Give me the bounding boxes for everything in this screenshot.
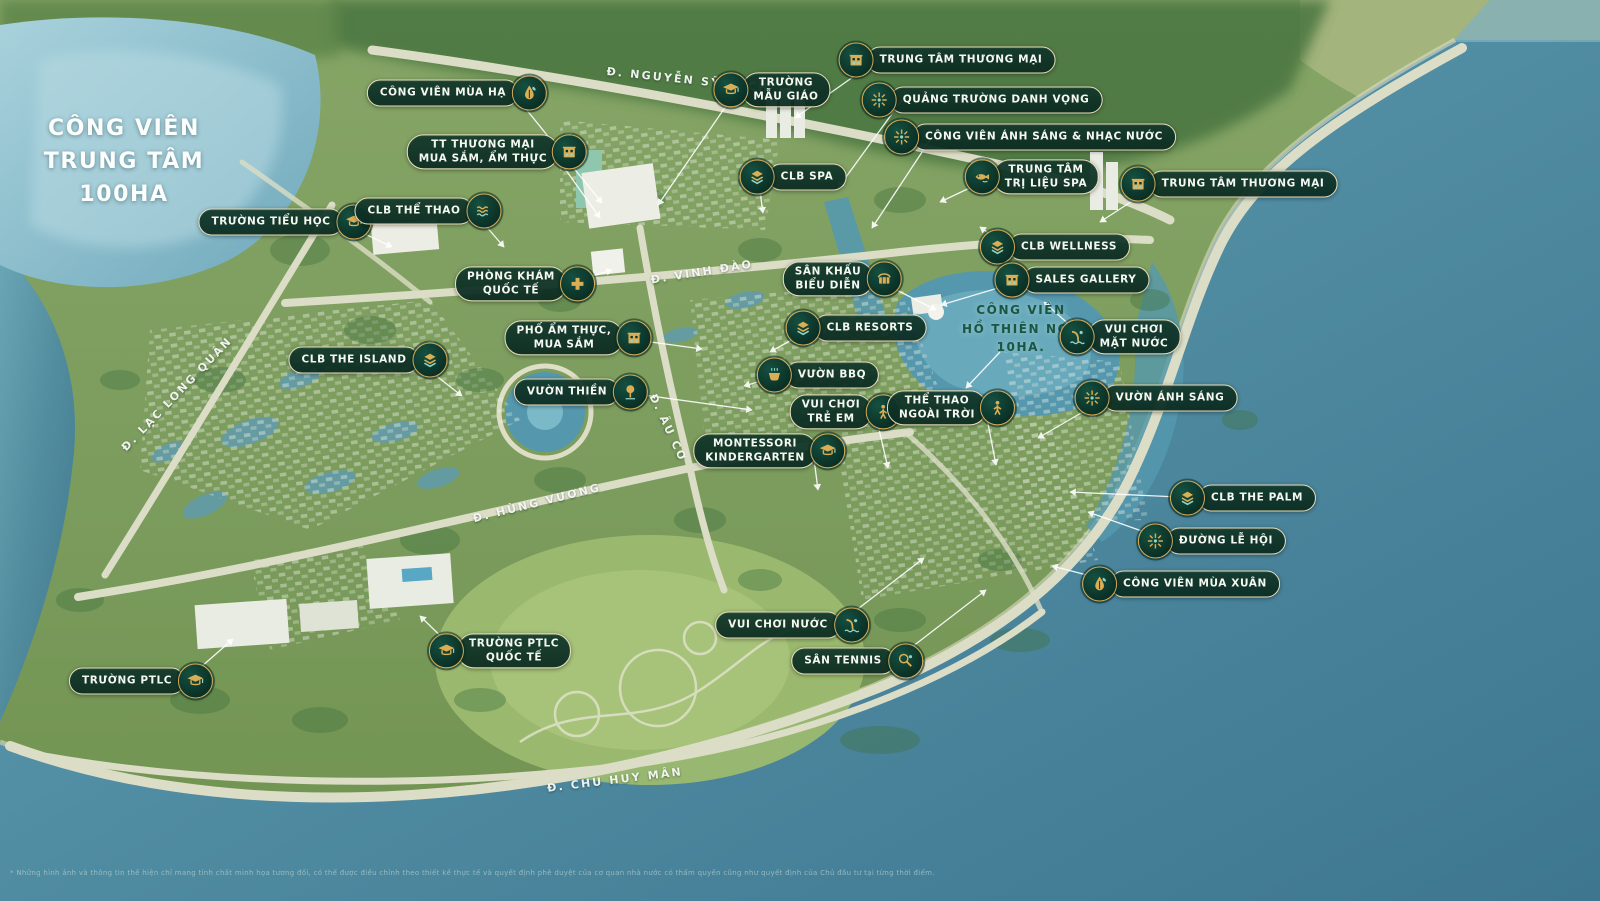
- marker-label: QUẢNG TRƯỜNG DANH VỌNG: [890, 86, 1103, 114]
- marker-label: CLB THE ISLAND: [288, 346, 419, 374]
- marker-label: TRUNG TÂM THƯƠNG MẠI: [867, 46, 1056, 74]
- layers-icon: [980, 230, 1015, 265]
- spark-icon: [884, 120, 919, 155]
- spark-icon: [1075, 381, 1110, 416]
- marker-duong-le-hoi[interactable]: ĐƯỜNG LỄ HỘI: [1138, 524, 1286, 559]
- marker-cong-vien-mua-xuan[interactable]: CÔNG VIÊN MÙA XUÂN: [1082, 567, 1280, 602]
- marker-vui-choi-nuoc[interactable]: VUI CHƠI NƯỚC: [715, 608, 869, 643]
- marker-label: TRƯỜNG PTLC: [69, 667, 185, 695]
- cap-icon: [178, 664, 213, 699]
- marker-clb-the-island[interactable]: CLB THE ISLAND: [288, 343, 447, 378]
- marker-label: VƯỜN BBQ: [785, 361, 879, 389]
- marker-label: TRUNG TÂM THƯƠNG MẠI: [1149, 170, 1338, 198]
- marker-montessori-kindergarten[interactable]: MONTESSORI KINDERGARTEN: [693, 433, 845, 468]
- aqua-icon: [834, 608, 869, 643]
- marker-label: CLB THỂ THAO: [354, 197, 473, 225]
- marker-label: TRƯỜNG MẪU GIÁO: [741, 72, 830, 107]
- marker-phong-kham-quoc-te[interactable]: PHÒNG KHÁM QUỐC TẾ: [455, 266, 595, 301]
- marker-san-tennis[interactable]: SÂN TENNIS: [791, 644, 923, 679]
- marker-cong-vien-mua-ha[interactable]: CÔNG VIÊN MÙA HẠ: [367, 76, 547, 111]
- masterplan-stage: CÔNG VIÊN TRUNG TÂM 100HA Đ. NGUYỄN SỸ S…: [0, 0, 1600, 901]
- marker-label: TRƯỜNG PTLC QUỐC TẾ: [457, 633, 571, 668]
- layers-icon: [1170, 481, 1205, 516]
- cap-icon: [810, 434, 845, 469]
- marker-label: SÂN KHẤU BIỂU DIỄN: [783, 261, 874, 296]
- layers-icon: [740, 160, 775, 195]
- marker-label: CÔNG VIÊN ÁNH SÁNG & NHẠC NƯỚC: [912, 123, 1176, 151]
- marker-truong-ptlc[interactable]: TRƯỜNG PTLC: [69, 664, 213, 699]
- mall-icon: [839, 43, 874, 78]
- marker-label: VƯỜN ÁNH SÁNG: [1103, 384, 1238, 412]
- marker-tt-thuong-mai-mua-sam[interactable]: TT THƯƠNG MẠI MUA SẮM, ẨM THỰC: [407, 134, 587, 169]
- leaf-icon: [1082, 567, 1117, 602]
- marker-label: CLB RESORTS: [814, 314, 927, 342]
- spark-icon: [1138, 524, 1173, 559]
- racket-icon: [888, 644, 923, 679]
- pot-icon: [757, 358, 792, 393]
- marker-label: VUI CHƠI NƯỚC: [715, 611, 841, 639]
- mall-icon: [1121, 167, 1156, 202]
- mall-icon: [552, 135, 587, 170]
- marker-label: THỂ THAO NGOÀI TRỜI: [887, 390, 987, 425]
- mall-icon: [995, 263, 1030, 298]
- marker-clb-the-palm[interactable]: CLB THE PALM: [1170, 481, 1316, 516]
- marker-vuon-anh-sang[interactable]: VƯỜN ÁNH SÁNG: [1075, 381, 1238, 416]
- marker-label: CLB WELLNESS: [1008, 233, 1130, 261]
- mall-icon: [616, 321, 651, 356]
- disclaimer-text: * Những hình ảnh và thông tin thể hiện c…: [10, 869, 1590, 877]
- marker-clb-the-thao[interactable]: CLB THỂ THAO: [354, 194, 501, 229]
- figure-icon: [980, 391, 1015, 426]
- marker-label: PHỐ ẨM THỰC, MUA SẮM: [505, 320, 624, 355]
- cap-icon: [429, 634, 464, 669]
- cap-icon: [713, 73, 748, 108]
- marker-cong-vien-anh-sang-nhac-nuoc[interactable]: CÔNG VIÊN ÁNH SÁNG & NHẠC NƯỚC: [884, 120, 1176, 155]
- marker-quang-truong-danh-vong[interactable]: QUẢNG TRƯỜNG DANH VỌNG: [862, 83, 1103, 118]
- marker-label: MONTESSORI KINDERGARTEN: [693, 433, 817, 468]
- marker-truong-tieu-hoc[interactable]: TRƯỜNG TIỂU HỌC: [198, 205, 371, 240]
- marker-label: CLB SPA: [768, 163, 847, 191]
- stage-icon: [866, 262, 901, 297]
- marker-the-thao-ngoai-troi[interactable]: THỂ THAO NGOÀI TRỜI: [887, 390, 1015, 425]
- cross-icon: [560, 267, 595, 302]
- marker-label: CLB THE PALM: [1198, 484, 1316, 512]
- fish-icon: [965, 160, 1000, 195]
- leaf-icon: [512, 76, 547, 111]
- tree-icon: [613, 375, 648, 410]
- marker-clb-spa[interactable]: CLB SPA: [740, 160, 847, 195]
- marker-vuon-thien[interactable]: VƯỜN THIỀN: [514, 375, 648, 410]
- marker-label: VUI CHƠI MẶT NƯỚC: [1088, 319, 1181, 354]
- marker-label: CÔNG VIÊN MÙA XUÂN: [1110, 570, 1280, 598]
- marker-label: TRƯỜNG TIỂU HỌC: [198, 208, 343, 236]
- marker-label: TRUNG TÂM TRỊ LIỆU SPA: [993, 159, 1099, 194]
- marker-trung-tam-thuong-mai-dong[interactable]: TRUNG TÂM THƯƠNG MẠI: [1121, 167, 1338, 202]
- marker-clb-wellness[interactable]: CLB WELLNESS: [980, 230, 1130, 265]
- central-park-title: CÔNG VIÊN TRUNG TÂM 100HA: [38, 112, 210, 211]
- marker-label: VUI CHƠI TRẺ EM: [790, 394, 873, 429]
- aqua-icon: [1060, 320, 1095, 355]
- layers-icon: [413, 343, 448, 378]
- marker-pho-am-thuc-mua-sam[interactable]: PHỐ ẨM THỰC, MUA SẮM: [505, 320, 652, 355]
- marker-label: VƯỜN THIỀN: [514, 378, 620, 406]
- marker-vui-choi-tre-em[interactable]: VUI CHƠI TRẺ EM: [790, 394, 901, 429]
- marker-truong-ptlc-quoc-te[interactable]: TRƯỜNG PTLC QUỐC TẾ: [429, 633, 571, 668]
- marker-vuon-bbq[interactable]: VƯỜN BBQ: [757, 358, 879, 393]
- marker-sales-gallery[interactable]: SALES GALLERY: [995, 263, 1150, 298]
- marker-label: PHÒNG KHÁM QUỐC TẾ: [455, 266, 567, 301]
- marker-san-khau-bieu-dien[interactable]: SÂN KHẤU BIỂU DIỄN: [783, 261, 902, 296]
- marker-vui-choi-mat-nuoc[interactable]: VUI CHƠI MẶT NƯỚC: [1060, 319, 1181, 354]
- marker-label: TT THƯƠNG MẠI MUA SẮM, ẨM THỰC: [407, 134, 559, 169]
- waves-icon: [467, 194, 502, 229]
- marker-label: ĐƯỜNG LỄ HỘI: [1166, 527, 1286, 555]
- marker-trung-tam-thuong-mai-bac[interactable]: TRUNG TÂM THƯƠNG MẠI: [839, 43, 1056, 78]
- marker-label: CÔNG VIÊN MÙA HẠ: [367, 79, 519, 107]
- layers-icon: [786, 311, 821, 346]
- marker-label: SALES GALLERY: [1023, 266, 1150, 294]
- spark-icon: [862, 83, 897, 118]
- marker-clb-resorts[interactable]: CLB RESORTS: [786, 311, 927, 346]
- marker-label: SÂN TENNIS: [791, 647, 895, 675]
- marker-truong-mau-giao[interactable]: TRƯỜNG MẪU GIÁO: [713, 72, 830, 107]
- marker-trung-tam-tri-lieu-spa[interactable]: TRUNG TÂM TRỊ LIỆU SPA: [965, 159, 1099, 194]
